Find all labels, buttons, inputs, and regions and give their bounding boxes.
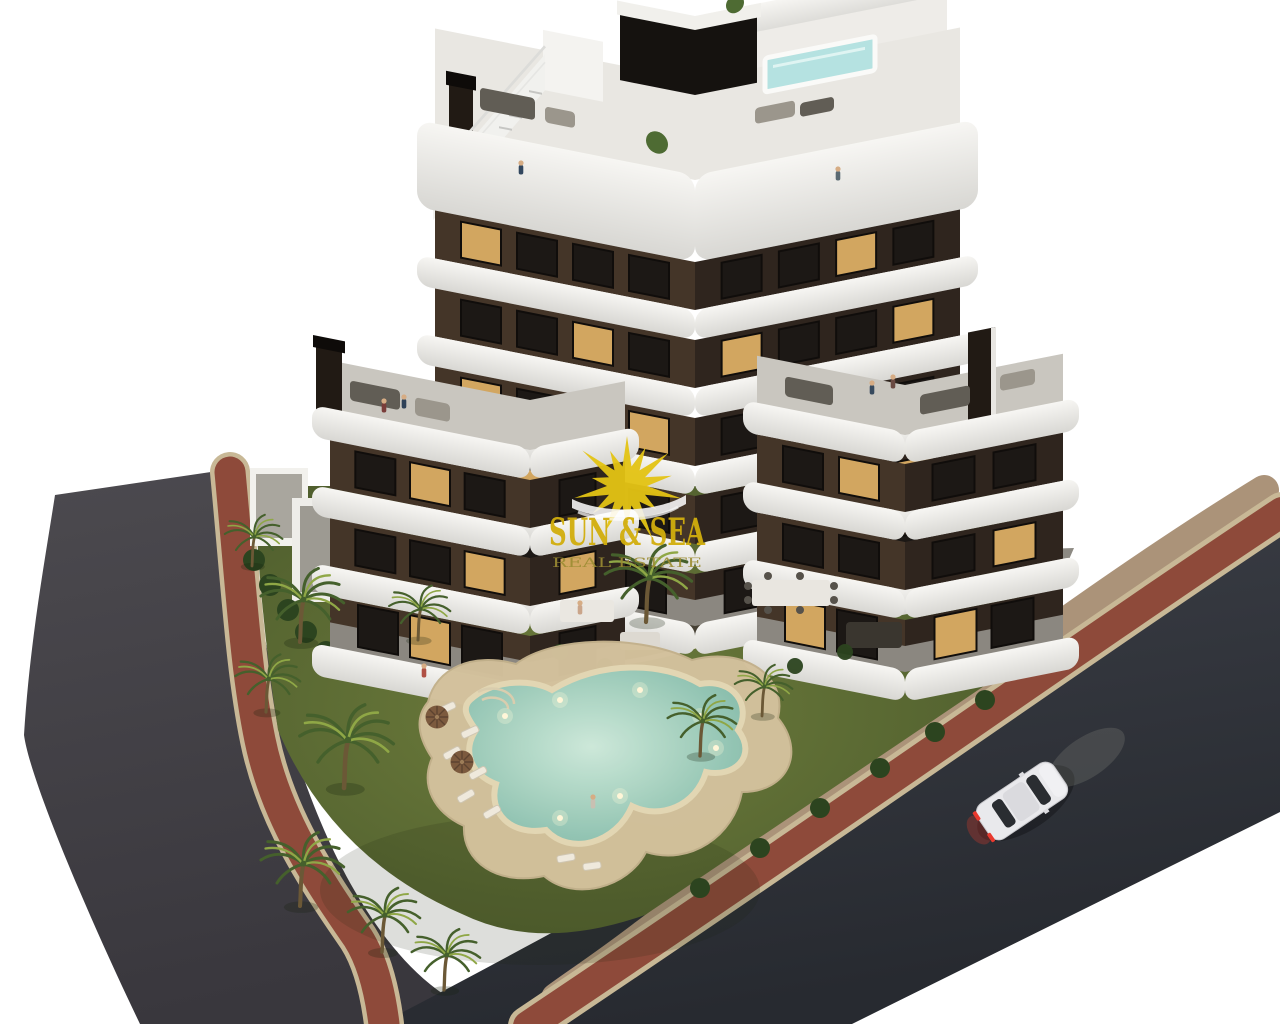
- window: [839, 535, 879, 579]
- window: [410, 462, 450, 506]
- window: [783, 446, 823, 490]
- hedge-bush: [837, 644, 853, 660]
- hedge-bush: [975, 690, 995, 710]
- window: [465, 473, 505, 517]
- dining-table: [752, 580, 830, 606]
- pool-umbrella: [426, 706, 449, 729]
- east-wing-southwest-face: [743, 353, 905, 702]
- architectural-render-scene: SUN & SEA REAL ESTATE: [0, 0, 1280, 1024]
- watermark-subtitle: REAL ESTATE: [552, 556, 702, 571]
- chair: [796, 606, 804, 614]
- window: [839, 457, 879, 501]
- chair: [796, 572, 804, 580]
- hedge-bush: [750, 838, 770, 858]
- terrace-door: [992, 598, 1034, 648]
- hedge-bush: [925, 722, 945, 742]
- window: [893, 299, 933, 343]
- person: [890, 374, 895, 388]
- chair: [764, 606, 772, 614]
- window: [517, 311, 557, 355]
- window: [933, 456, 975, 500]
- render-canvas: SUN & SEA REAL ESTATE: [0, 0, 1280, 1024]
- person: [401, 394, 406, 408]
- window: [779, 243, 819, 287]
- chimney: [316, 343, 342, 418]
- window: [410, 540, 450, 584]
- terrace-door: [358, 605, 398, 655]
- window: [722, 333, 762, 377]
- window: [461, 300, 501, 344]
- hedge-bush: [810, 798, 830, 818]
- person: [590, 794, 595, 808]
- hedge-bush: [870, 758, 890, 778]
- pool-light: [552, 692, 568, 708]
- pool-light: [612, 788, 628, 804]
- chair: [744, 582, 752, 590]
- window: [893, 221, 933, 265]
- window: [517, 233, 557, 277]
- window: [573, 322, 613, 366]
- watermark-title: SUN & SEA: [549, 510, 706, 554]
- terrace-door: [785, 599, 825, 649]
- window: [994, 522, 1036, 566]
- window: [779, 321, 819, 365]
- hedge-bush: [787, 658, 803, 674]
- person: [835, 166, 840, 180]
- chair: [830, 582, 838, 590]
- window: [465, 551, 505, 595]
- window: [933, 534, 975, 578]
- pool-light: [552, 810, 568, 826]
- chimney-lit-edge: [991, 327, 996, 420]
- window: [355, 529, 395, 573]
- window: [573, 244, 613, 288]
- window: [629, 255, 669, 299]
- window: [994, 444, 1036, 488]
- terrace-door: [935, 609, 977, 659]
- person: [577, 600, 582, 614]
- person: [421, 663, 426, 677]
- person: [869, 380, 874, 394]
- pool-light: [497, 708, 513, 724]
- window: [722, 255, 762, 299]
- pool-umbrella: [451, 751, 474, 774]
- hedge-bush: [690, 878, 710, 898]
- chair: [744, 596, 752, 604]
- chair: [830, 596, 838, 604]
- window: [629, 333, 669, 377]
- person: [518, 160, 523, 174]
- pool-light: [632, 682, 648, 698]
- person: [381, 398, 386, 412]
- outdoor-sofa: [846, 622, 902, 648]
- window: [461, 222, 501, 266]
- window: [836, 232, 876, 276]
- stair-tower: [543, 30, 603, 102]
- chimney: [968, 327, 995, 424]
- chair: [764, 572, 772, 580]
- window: [783, 524, 823, 568]
- outdoor-sofa-white: [560, 600, 614, 622]
- window: [836, 310, 876, 354]
- window: [355, 451, 395, 495]
